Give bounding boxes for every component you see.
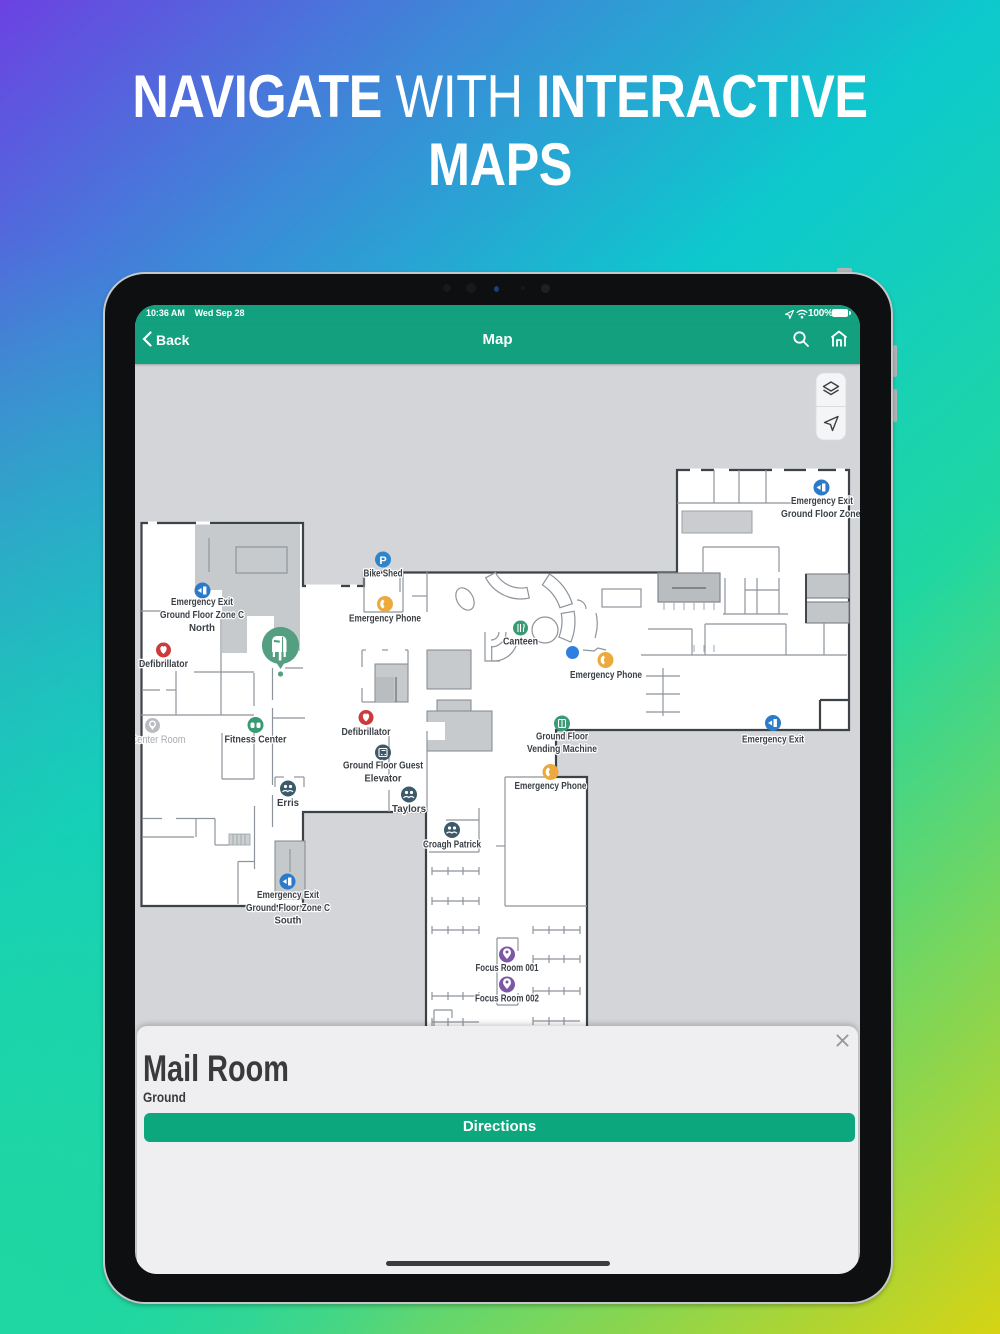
svg-text:Emergency Exit: Emergency Exit <box>791 495 853 507</box>
svg-text:Vending Machine: Vending Machine <box>527 743 597 755</box>
svg-text:Ground Floor Guest: Ground Floor Guest <box>343 760 423 772</box>
svg-text:Defibrillator: Defibrillator <box>342 726 391 738</box>
svg-text:Ground Floor Zone C: Ground Floor Zone C <box>246 902 330 914</box>
svg-text:Emergency Exit: Emergency Exit <box>257 889 319 901</box>
svg-text:Croagh Patrick: Croagh Patrick <box>423 839 481 851</box>
svg-text:Ground Floor Zone C: Ground Floor Zone C <box>160 609 244 621</box>
svg-text:Emergency Exit: Emergency Exit <box>171 596 233 608</box>
svg-text:Emergency Phone: Emergency Phone <box>349 613 421 625</box>
svg-text:Bike Shed: Bike Shed <box>364 568 403 580</box>
svg-text:Emergency Exit: Emergency Exit <box>742 734 804 746</box>
svg-text:Emergency Phone: Emergency Phone <box>570 669 642 681</box>
svg-text:Ground Floor Zone A: Ground Floor Zone A <box>781 508 860 520</box>
svg-text:Erris: Erris <box>277 797 299 809</box>
svg-text:Emergency Phone: Emergency Phone <box>515 780 587 792</box>
svg-text:Ground Floor: Ground Floor <box>536 731 588 743</box>
svg-text:Defibrillator: Defibrillator <box>139 658 188 670</box>
svg-text:Focus Room 001: Focus Room 001 <box>476 962 539 974</box>
svg-text:P: P <box>379 555 386 567</box>
svg-text:Canteen: Canteen <box>503 636 538 648</box>
svg-text:Focus Room 002: Focus Room 002 <box>475 993 539 1005</box>
svg-text:South: South <box>275 915 302 927</box>
svg-text:Taylors: Taylors <box>392 803 426 815</box>
svg-text:Elevator: Elevator <box>365 773 402 785</box>
svg-text:Fitness Center: Fitness Center <box>225 734 287 746</box>
svg-text:North: North <box>189 622 215 634</box>
svg-text:Center Room: Center Room <box>135 734 186 746</box>
